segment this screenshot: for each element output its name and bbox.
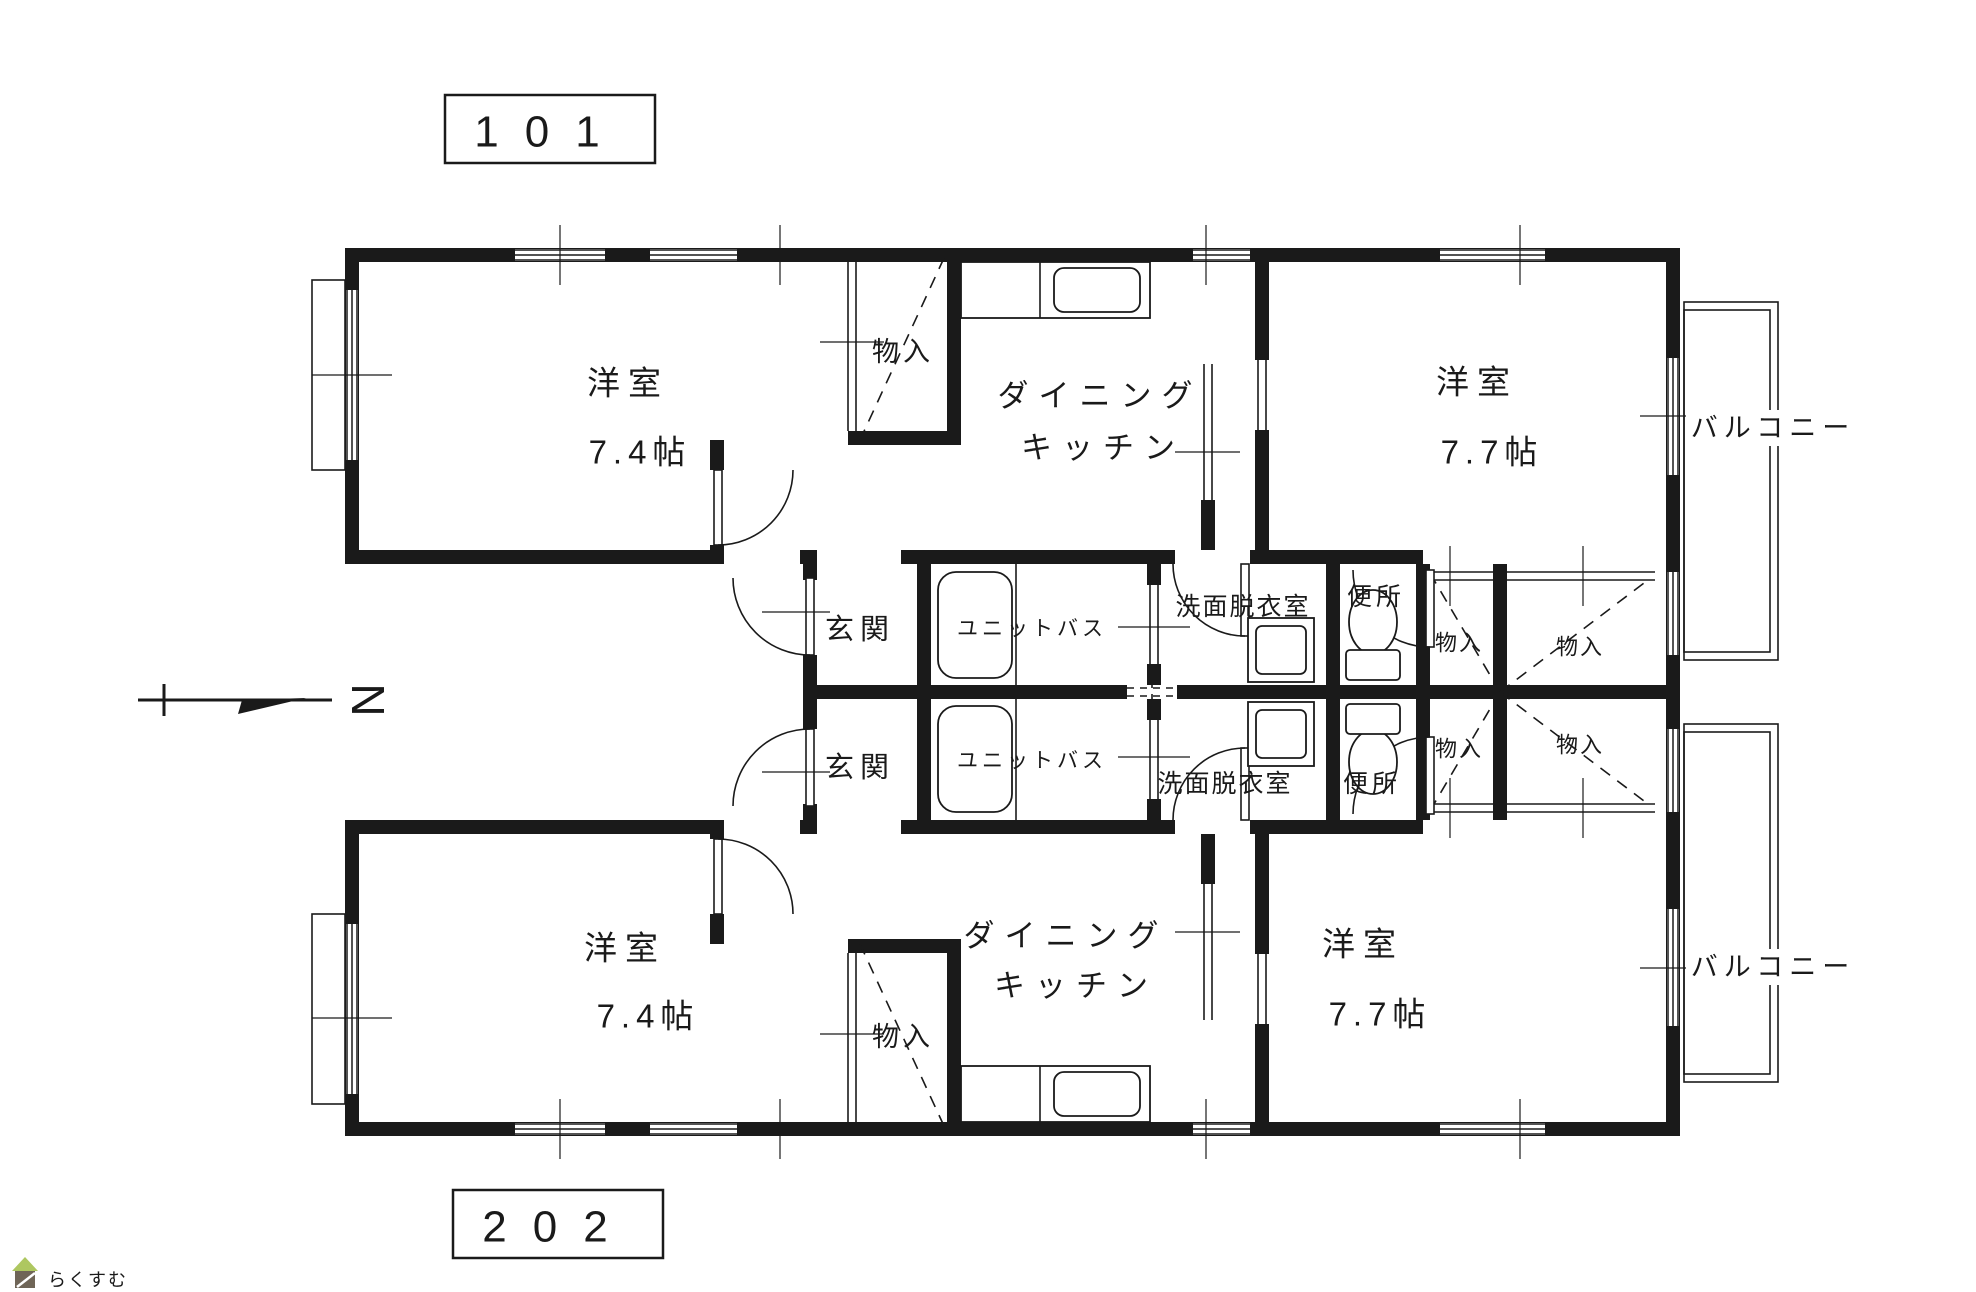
- room-label-western-left-101: 洋室: [587, 365, 669, 402]
- toilet-label-101: 便所: [1347, 583, 1405, 611]
- closet-label-top-101: 物入: [872, 337, 934, 367]
- closet-hall-1-label-202: 物入: [1435, 737, 1483, 762]
- north-label: N: [342, 683, 394, 716]
- room-size-western-left-202: 7.4帖: [597, 998, 700, 1035]
- balcony-outline-101: [1684, 302, 1778, 660]
- window: [1193, 249, 1250, 261]
- unit-101-label-box: 101: [445, 95, 655, 163]
- closet-label-top-202: 物入: [872, 1022, 934, 1052]
- window: [1667, 729, 1679, 812]
- balcony-label-202: バルコニー: [1691, 952, 1855, 982]
- washroom-label-202: 洗面脱衣室: [1157, 770, 1292, 798]
- unit-bath-label-202: ユニットバス: [957, 750, 1107, 773]
- closet-hall-1-label-101: 物入: [1435, 631, 1483, 656]
- watermark-brand-text: らくすむ: [48, 1270, 128, 1290]
- entrance-door-202: [733, 729, 814, 806]
- kitchen-label-101: キッチン: [1021, 431, 1185, 466]
- window: [1440, 1123, 1545, 1135]
- entrance-label-101: 玄関: [825, 613, 895, 646]
- window: [1193, 1123, 1250, 1135]
- balcony-label-101: バルコニー: [1691, 413, 1855, 443]
- washing-machine-icon: [1248, 702, 1314, 766]
- floor-plan-drawing: 洋室 7.4帖 物入 ダイニング キッチン 洋室 7.7帖 バルコニー 玄関 ユ…: [0, 0, 1976, 1292]
- unit-bath-label-101: ユニットバス: [957, 618, 1107, 641]
- window: [1667, 572, 1679, 655]
- dining-label-202: ダイニング: [964, 919, 1169, 954]
- kitchen-sink-icon: [1054, 1072, 1140, 1116]
- room-door-202: [714, 839, 793, 914]
- kitchen-label-202: キッチン: [994, 969, 1158, 1004]
- window: [650, 249, 737, 261]
- closet-hall-2-label-101: 物入: [1556, 635, 1604, 660]
- floor-plan-page: 洋室 7.4帖 物入 ダイニング キッチン 洋室 7.7帖 バルコニー 玄関 ユ…: [0, 0, 1976, 1292]
- room-door-101: [714, 470, 793, 545]
- unit-202-label-box: 202: [453, 1190, 663, 1258]
- washroom-label-101: 洗面脱衣室: [1175, 593, 1310, 621]
- kitchen-counter-icon: [961, 1066, 1150, 1122]
- window: [650, 1123, 737, 1135]
- washing-machine-icon: [1248, 618, 1314, 682]
- toilet-label-202: 便所: [1343, 770, 1401, 798]
- kitchen-sink-icon: [1054, 268, 1140, 312]
- room-size-western-right-101: 7.7帖: [1441, 434, 1544, 471]
- kitchen-counter-icon: [961, 262, 1150, 318]
- window: [1440, 249, 1545, 261]
- window: [312, 914, 358, 1104]
- north-arrow: N: [138, 683, 394, 716]
- house-roof-icon: [12, 1257, 38, 1271]
- room-label-western-left-202: 洋室: [584, 930, 666, 967]
- entrance-door-101: [733, 578, 814, 655]
- balcony-outline-202: [1684, 724, 1778, 1082]
- brand-watermark: らくすむ: [12, 1257, 128, 1290]
- unit-202-label: 202: [482, 1203, 633, 1252]
- room-size-western-right-202: 7.7帖: [1329, 996, 1432, 1033]
- entrance-label-202: 玄関: [825, 751, 895, 784]
- room-label-western-right-101: 洋室: [1436, 364, 1518, 401]
- room-label-western-right-202: 洋室: [1322, 926, 1404, 963]
- unit-101-label: 101: [474, 108, 625, 157]
- room-size-western-left-101: 7.4帖: [589, 434, 692, 471]
- dining-label-101: ダイニング: [998, 379, 1203, 414]
- closet-hall-2-label-202: 物入: [1556, 733, 1604, 758]
